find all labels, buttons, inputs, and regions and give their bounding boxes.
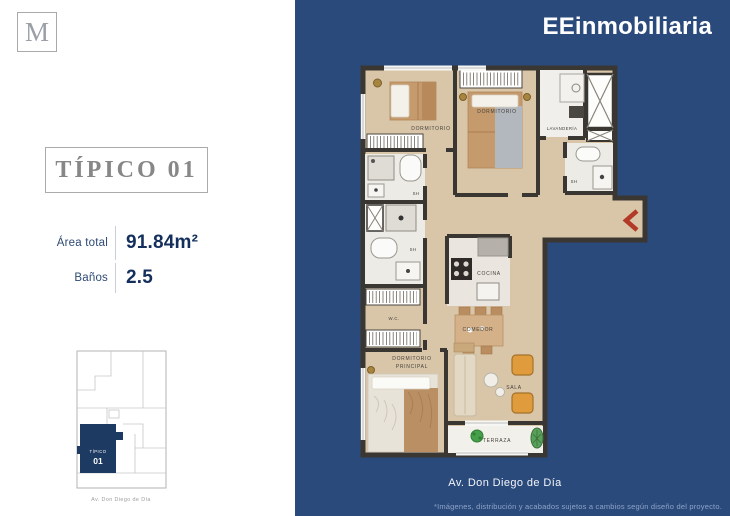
keyplan-unit-label-line2: 01: [93, 456, 103, 466]
keyplan-svg: TÍPICO 01 Av. Don Diego de Día: [63, 346, 177, 510]
spec-row-banos: Baños 2.5: [0, 263, 153, 293]
spec-value-area: 91.84m²: [126, 232, 198, 254]
spec-row-area: Área total 91.84m²: [0, 226, 198, 260]
spec-divider: [115, 263, 116, 293]
room-label-dormitorio-principal-1: DORMITORIO: [392, 356, 431, 362]
room-label-terraza: TERRAZA: [483, 438, 511, 444]
blue-panel: EEinmobiliaria: [295, 0, 730, 516]
floorplan-svg: DORMITORIO DORMITORIO LAVANDERÍA SH SH S…: [360, 62, 650, 462]
floorplan: DORMITORIO DORMITORIO LAVANDERÍA SH SH S…: [360, 62, 650, 467]
room-label-sala: SALA: [506, 385, 522, 391]
room-label-sh-top: SH: [413, 191, 420, 196]
room-label-dormitorio-1: DORMITORIO: [411, 126, 450, 132]
unit-title: TÍPICO 01: [55, 157, 197, 184]
room-label-dormitorio-principal-2: PRINCIPAL: [396, 364, 428, 370]
bed-dormitorio-principal: [368, 367, 439, 453]
unit-title-box: TÍPICO 01: [45, 147, 208, 193]
spec-label-area: Área total: [0, 237, 108, 249]
room-label-dormitorio-2: DORMITORIO: [477, 109, 516, 115]
spec-label-banos: Baños: [0, 272, 108, 284]
room-label-sh-mid: SH: [410, 247, 417, 252]
spec-divider: [115, 226, 116, 260]
spec-value-banos: 2.5: [126, 267, 153, 289]
brand-logo-letter: M: [25, 19, 49, 46]
brand-name: EEinmobiliaria: [542, 13, 712, 41]
room-label-wc: W.C.: [389, 316, 400, 321]
keyplan: TÍPICO 01 Av. Don Diego de Día: [63, 346, 177, 515]
room-label-cocina: COCINA: [477, 271, 501, 277]
bed-dormitorio-2: [460, 92, 531, 168]
disclaimer-text: *Imágenes, distribución y acabados sujet…: [434, 502, 722, 511]
keyplan-street-label: Av. Don Diego de Día: [91, 497, 151, 503]
room-label-sh-right: SH: [571, 179, 578, 184]
brand-logo: M: [17, 12, 57, 52]
keyplan-unit-label-line1: TÍPICO: [90, 449, 107, 454]
room-label-lavanderia: LAVANDERÍA: [547, 126, 578, 131]
street-label: Av. Don Diego de Día: [360, 477, 650, 489]
room-label-comedor: COMEDOR: [462, 327, 493, 333]
